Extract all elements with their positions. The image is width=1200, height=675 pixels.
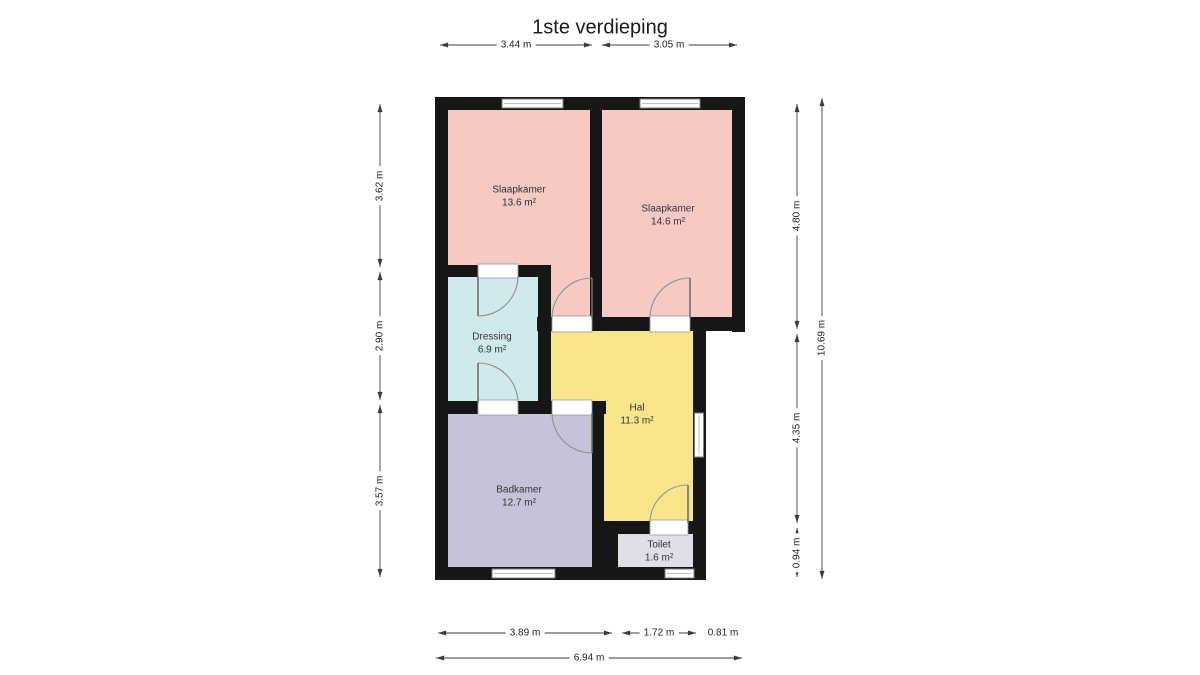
wall-left <box>435 97 448 580</box>
wall-toilet-left <box>604 521 618 580</box>
room-area: 13.6 m² <box>492 197 545 210</box>
label-toilet: Toilet 1.6 m² <box>645 540 673 565</box>
room-name: Dressing <box>472 332 511 345</box>
room-name: Hal <box>620 403 653 416</box>
room-name: Slaapkamer <box>641 204 694 217</box>
room-area: 1.6 m² <box>645 552 673 565</box>
floor-plan-svg <box>0 0 1200 675</box>
window-slaapkamer-2 <box>640 99 700 108</box>
room-name: Slaapkamer <box>492 185 545 198</box>
label-dressing: Dressing 6.9 m² <box>472 332 511 357</box>
dim-bottom-2: 1.72 m <box>640 628 679 639</box>
wall-badkamer-right <box>592 401 604 580</box>
window-slaapkamer-1 <box>502 99 563 108</box>
window-hal-right <box>695 413 704 457</box>
dim-bottom-1: 3.89 m <box>506 628 545 639</box>
dim-left-3: 3.57 m <box>375 472 386 511</box>
room-area: 12.7 m² <box>496 497 542 510</box>
floor-plan-page: 1ste verdieping <box>0 0 1200 675</box>
dim-left-2: 2.90 m <box>375 317 386 356</box>
room-area: 11.3 m² <box>620 415 653 428</box>
wall-dressing-right <box>538 265 551 410</box>
label-hal: Hal 11.3 m² <box>620 403 653 428</box>
window-toilet <box>665 569 694 578</box>
label-badkamer: Badkamer 12.7 m² <box>496 485 542 510</box>
dim-right-total: 10.69 m <box>817 316 828 360</box>
room-name: Badkamer <box>496 485 542 498</box>
dim-right-1: 4.80 m <box>792 197 803 236</box>
wall-right-upper <box>732 97 745 332</box>
room-name: Toilet <box>645 540 673 553</box>
dim-bottom-total: 6.94 m <box>570 653 609 664</box>
dim-top-2: 3.05 m <box>650 40 689 51</box>
room-area: 6.9 m² <box>472 344 511 357</box>
label-slaapkamer-1: Slaapkamer 13.6 m² <box>492 185 545 210</box>
dim-top-1: 3.44 m <box>497 40 536 51</box>
dim-bottom-3: 0.81 m <box>704 628 743 639</box>
window-badkamer <box>492 569 555 578</box>
dim-right-2: 4.35 m <box>792 409 803 448</box>
room-area: 14.6 m² <box>641 216 694 229</box>
dim-right-3: 0.94 m <box>792 534 803 573</box>
dim-left-1: 3.62 m <box>375 167 386 206</box>
label-slaapkamer-2: Slaapkamer 14.6 m² <box>641 204 694 229</box>
